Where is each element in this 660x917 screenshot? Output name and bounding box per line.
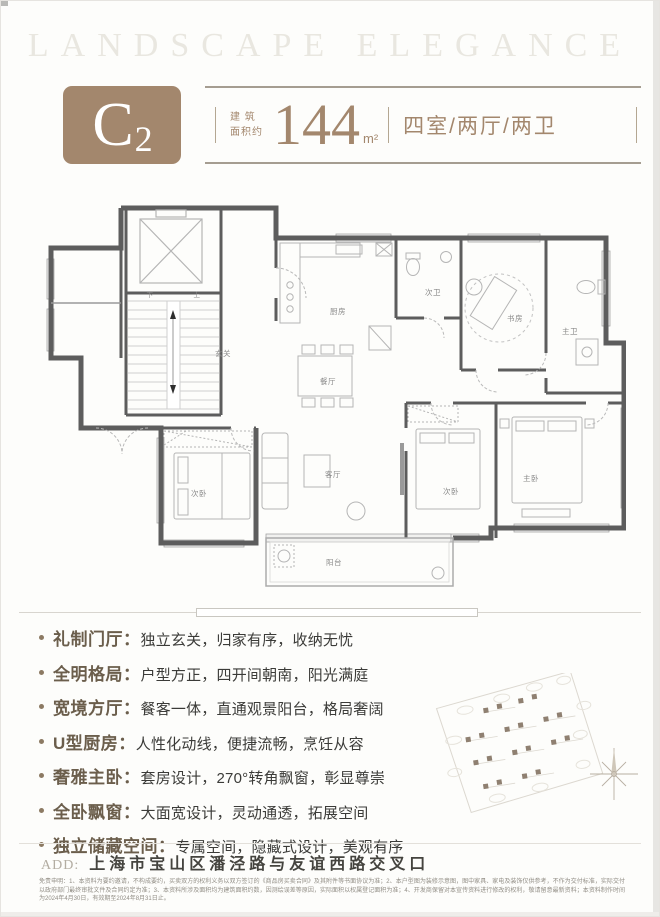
- divider: [215, 107, 216, 143]
- address-label: ADD:: [41, 858, 79, 874]
- bullet-dot: [39, 739, 44, 744]
- bullet-dot: [39, 773, 44, 778]
- unit-number: 2: [135, 121, 153, 157]
- scan-artifact: [1, 1, 8, 6]
- feature-item: U型厨房：人性化动线，便捷流畅，烹饪从容: [39, 729, 449, 754]
- label-bedroom-left: 次卧: [191, 488, 207, 498]
- unit-type-badge: C 2: [63, 86, 181, 164]
- area-unit: m²: [363, 131, 378, 146]
- bullet-dot: [39, 635, 44, 640]
- address-divider-line: [19, 843, 641, 844]
- rooms-count: 四室/两厅/两卫: [403, 110, 557, 140]
- bullet-dot: [39, 670, 44, 675]
- bullet-dot: [39, 808, 44, 813]
- site-buildings: [460, 690, 575, 791]
- label-master-bedroom: 主卧: [523, 473, 539, 483]
- feature-item: 礼制门厅：独立玄关，归家有序，收纳无忧: [39, 625, 449, 650]
- label-living: 客厅: [325, 469, 341, 479]
- label-bedroom-mid: 次卧: [443, 486, 459, 496]
- label-dining: 餐厅: [320, 377, 336, 386]
- unit-stats: 建 筑 面积约 144 m² 四室/两厅/两卫: [205, 86, 641, 164]
- address-text: 上海市宝山区潘泾路与友谊西路交叉口: [89, 850, 429, 874]
- area-value: 144: [273, 96, 360, 154]
- label-stair-up: 上: [194, 290, 201, 299]
- floor-plan: 玄关 厨房 餐厅 次卫 书房 主卫 客厅 次卧 次卧 主卧 阳台 下 上: [36, 193, 626, 610]
- site-trees: [436, 673, 604, 809]
- label-study: 书房: [507, 313, 523, 323]
- label-master-bath: 主卫: [562, 326, 578, 336]
- site-boundary: [434, 673, 606, 813]
- outer-walls: [51, 208, 624, 543]
- feature-item: 全明格局：户型方正，四开间朝南，阳光满庭: [39, 660, 449, 685]
- section-divider-box: [196, 608, 478, 617]
- feature-item: 奢雅主卧：套房设计，270°转角飘窗，彰显尊崇: [39, 763, 449, 788]
- floor-plan-drawing: 玄关 厨房 餐厅 次卫 书房 主卫 客厅 次卧 次卧 主卧 阳台 下 上: [36, 193, 626, 605]
- divider: [636, 107, 637, 143]
- legal-fine-print: 免责申明：1、本资料为要约邀请，不构成要约，买卖双方的权利义务以双方签订的《商品…: [39, 878, 625, 904]
- feature-list: 礼制门厅：独立玄关，归家有序，收纳无忧 全明格局：户型方正，四开间朝南，阳光满庭…: [39, 625, 449, 867]
- area-label: 建 筑 面积约: [230, 110, 263, 140]
- label-kitchen: 厨房: [330, 306, 346, 316]
- label-stair-down: 下: [147, 291, 154, 299]
- site-plan: [431, 673, 641, 818]
- bullet-dot: [39, 704, 44, 709]
- feature-item: 全卧飘窗：大面宽设计，灵动通透，拓展空间: [39, 798, 449, 823]
- label-balcony: 阳台: [326, 557, 342, 567]
- label-second-bath: 次卫: [425, 287, 441, 297]
- address-bar: ADD: 上海市宝山区潘泾路与友谊西路交叉口: [41, 850, 429, 874]
- site-plan-drawing: [431, 673, 641, 813]
- floorplan-poster: { "wordmark": "LANDSCAPE ELEGANCE", "hea…: [0, 0, 660, 917]
- page-edge-shadow: [653, 1, 659, 916]
- unit-letter: C: [92, 94, 133, 156]
- elevator: [140, 210, 202, 283]
- page-edge-shadow-bottom: [1, 912, 659, 916]
- label-entry: 玄关: [215, 348, 231, 358]
- site-plan-rotated: [434, 673, 606, 813]
- feature-item: 宽境方厅：餐客一体，直通观景阳台，格局奢阔: [39, 694, 449, 719]
- divider: [388, 107, 389, 143]
- unit-header: C 2 建 筑 面积约 144 m² 四室/两厅/两卫: [63, 86, 641, 164]
- brand-wordmark: LANDSCAPE ELEGANCE: [1, 27, 659, 65]
